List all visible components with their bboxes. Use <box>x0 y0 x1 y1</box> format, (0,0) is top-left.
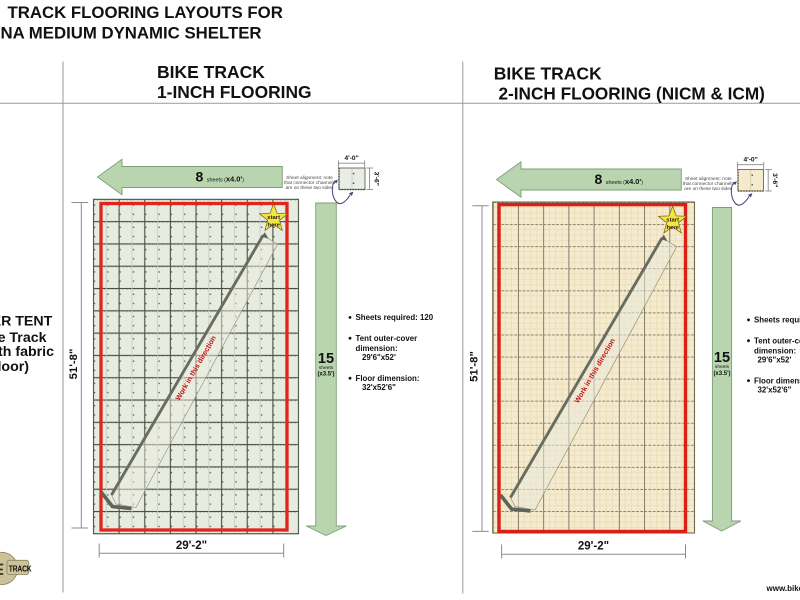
svg-text:29'-2": 29'-2" <box>578 541 609 553</box>
svg-text:1-INCH FLOORING: 1-INCH FLOORING <box>157 82 312 102</box>
svg-text:BIKE TRACK: BIKE TRACK <box>157 62 265 82</box>
svg-text:4'-0": 4'-0" <box>743 157 757 164</box>
svg-text:TRACK FLOORING LAYOUTS FOR: TRACK FLOORING LAYOUTS FOR <box>8 3 283 22</box>
svg-text:15: 15 <box>714 350 730 366</box>
svg-text:Sheets required: 120: Sheets required: 120 <box>754 316 800 325</box>
svg-text:3'-6": 3'-6" <box>372 172 379 186</box>
svg-text:NA MEDIUM DYNAMIC SHELTER: NA MEDIUM DYNAMIC SHELTER <box>1 23 262 42</box>
svg-text:15: 15 <box>318 351 334 367</box>
svg-text:TRACK: TRACK <box>9 564 32 574</box>
svg-text:2-INCH FLOORING (NICM & ICM): 2-INCH FLOORING (NICM & ICM) <box>499 84 765 104</box>
svg-text:Floor dimension:: Floor dimension: <box>356 374 420 383</box>
svg-text:(x3.5'): (x3.5') <box>713 371 730 377</box>
svg-text:here: here <box>666 225 679 231</box>
svg-text:51'-8": 51'-8" <box>68 349 80 380</box>
svg-text:3'-6": 3'-6" <box>771 173 778 187</box>
svg-text:32'x52'6": 32'x52'6" <box>362 383 396 392</box>
svg-text:ER TENT: ER TENT <box>0 313 53 329</box>
svg-text:are on these two sides: are on these two sides <box>286 185 335 191</box>
svg-text:sheets: sheets <box>319 365 334 371</box>
svg-text:Sheets required: 120: Sheets required: 120 <box>356 313 434 322</box>
svg-text:29'6"x52': 29'6"x52' <box>362 353 396 362</box>
svg-text:www.biketrack.com: www.biketrack.com <box>766 584 800 593</box>
svg-text:29'-2": 29'-2" <box>176 540 207 552</box>
svg-text:dimension:: dimension: <box>356 344 398 353</box>
svg-text:BIKE TRACK: BIKE TRACK <box>494 64 602 84</box>
svg-text:32'x52'6": 32'x52'6" <box>758 386 792 395</box>
svg-text:51'-8": 51'-8" <box>469 351 481 382</box>
svg-text:Floor dimension:: Floor dimension: <box>754 376 800 385</box>
svg-text:ath fabric: ath fabric <box>0 344 54 360</box>
svg-text:sheets: sheets <box>715 364 730 370</box>
svg-text:loor): loor) <box>0 359 29 375</box>
svg-text:are on these two sides: are on these two sides <box>684 186 733 192</box>
svg-text:Tent outer-cover: Tent outer-cover <box>356 334 418 343</box>
svg-text:here: here <box>267 223 280 229</box>
svg-text:start: start <box>267 215 280 221</box>
svg-text:29'6"x52': 29'6"x52' <box>758 356 792 365</box>
svg-text:dimension:: dimension: <box>754 347 796 356</box>
svg-text:4'-0": 4'-0" <box>344 155 358 162</box>
svg-text:Tent outer-cover: Tent outer-cover <box>754 336 800 345</box>
svg-text:(x3.5'): (x3.5') <box>317 372 334 378</box>
svg-text:start: start <box>666 218 679 224</box>
